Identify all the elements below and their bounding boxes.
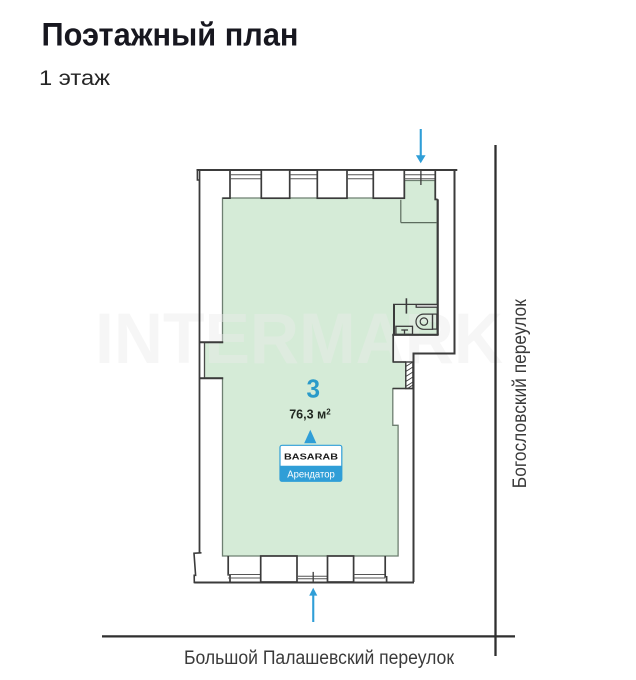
svg-text:1 этаж: 1 этаж: [39, 67, 110, 90]
svg-text:BASARAB: BASARAB: [284, 452, 338, 462]
svg-text:Арендатор: Арендатор: [287, 469, 335, 481]
svg-text:Большой Палашевский переулок: Большой Палашевский переулок: [184, 648, 455, 669]
svg-text:Поэтажный план: Поэтажный план: [42, 17, 299, 53]
svg-text:3: 3: [307, 374, 321, 404]
svg-text:76,3 м2: 76,3 м2: [289, 407, 331, 421]
svg-text:Богословский переулок: Богословский переулок: [510, 299, 531, 489]
svg-text:INTERMARK: INTERMARK: [95, 300, 503, 379]
